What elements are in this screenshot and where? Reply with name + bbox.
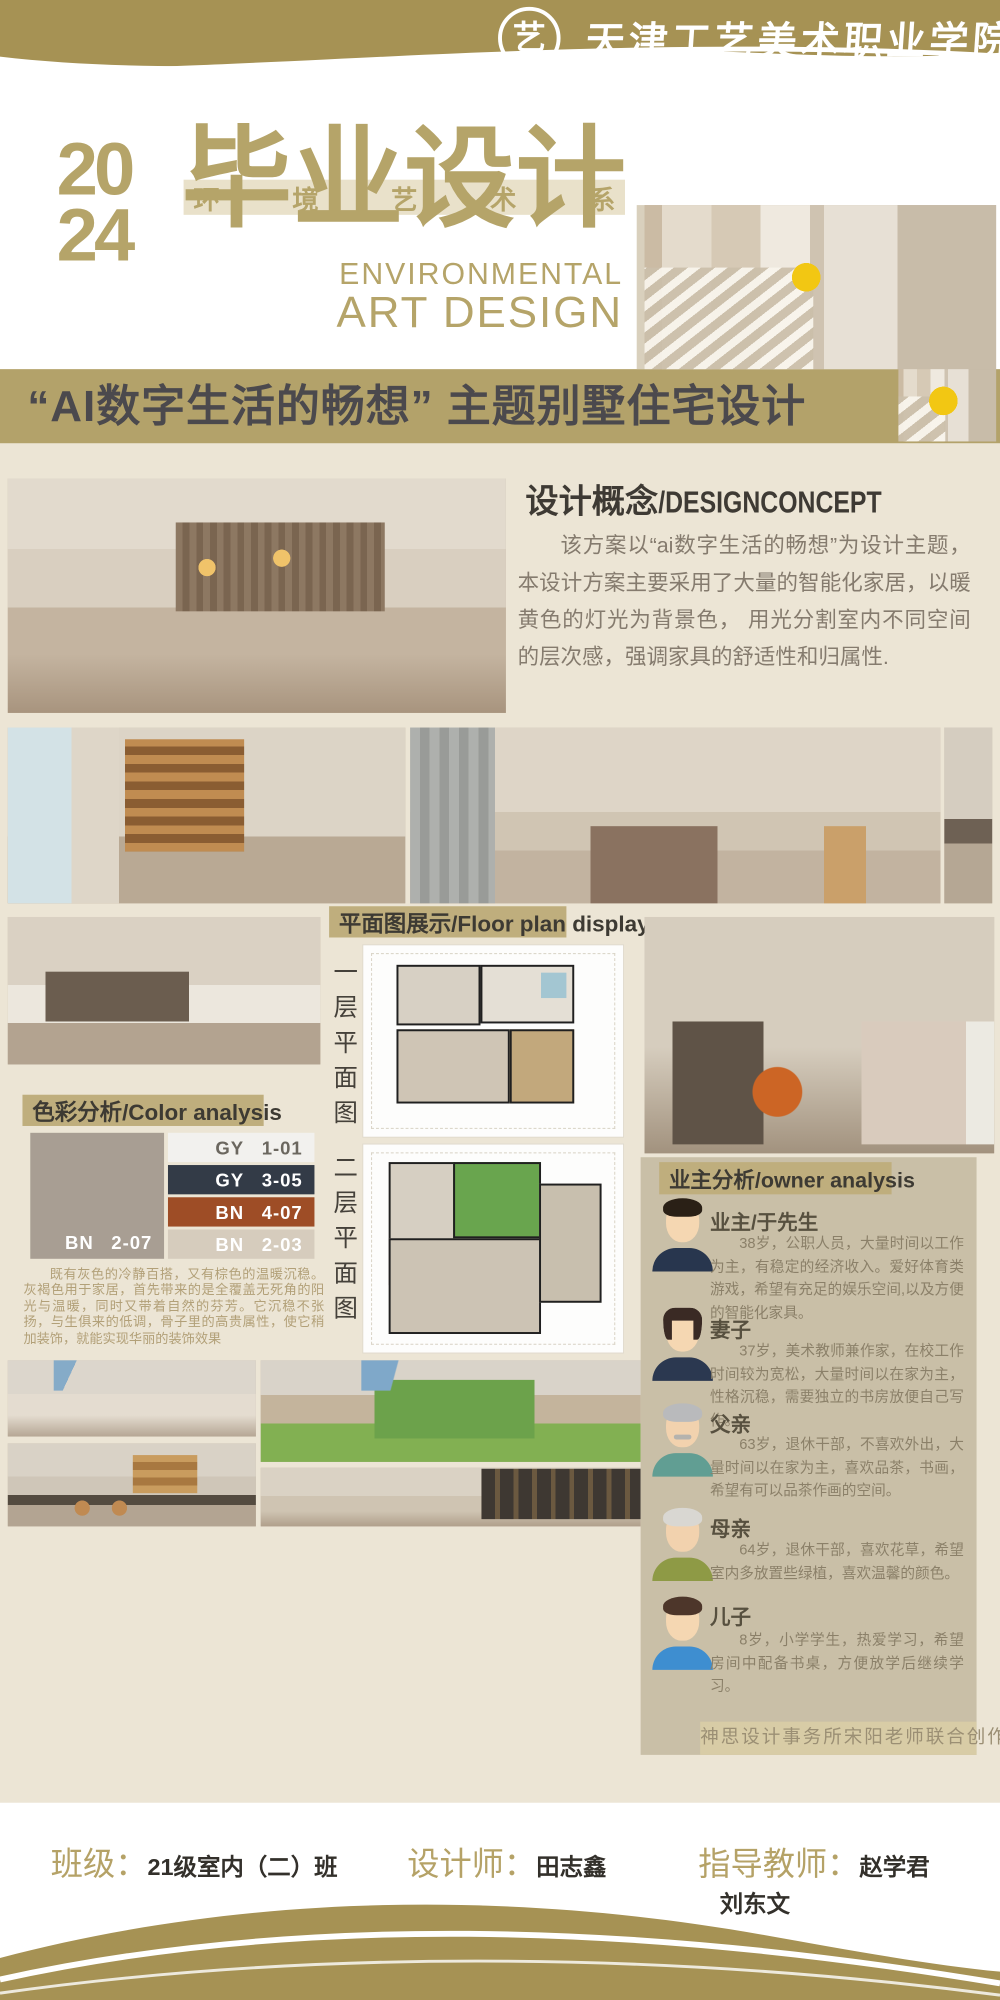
- photo-edge-strip: [637, 205, 645, 369]
- floor-plan-2-room: [539, 1184, 602, 1303]
- member-desc-mother: 64岁，退休干部，喜欢花草，希望室内多放置些绿植，喜欢温馨的颜色。: [710, 1539, 964, 1585]
- floor-plan-1-room-wood: [510, 1029, 574, 1103]
- year-top: 20: [57, 137, 132, 203]
- swatch-label: BN: [65, 1233, 94, 1254]
- footer-designer-value: 田志鑫: [536, 1854, 606, 1880]
- floor-plan-heading: 平面图展示/Floor plan display: [339, 905, 650, 938]
- floor-plan-2: [363, 1145, 623, 1353]
- footer-advisor-label: 指导教师：: [698, 1846, 859, 1882]
- poster: 艺 天津工艺美术职业学院 20 24 环 境 艺 术 系 毕业设计 ENVIRO…: [0, 0, 1000, 2000]
- concept-heading-en: /DESIGNCONCEPT: [658, 485, 881, 520]
- avatar-head: [666, 1406, 699, 1447]
- footer-class-value: 21级室内（二）班: [147, 1854, 337, 1880]
- subtitle-art-design: ART DESIGN: [182, 287, 623, 338]
- swatch-code: 2-03: [262, 1235, 303, 1256]
- swatch-bn-2-07: BN2-07: [30, 1133, 164, 1259]
- school-name: 天津工艺美术职业学院: [584, 10, 998, 67]
- avatar-torso: [652, 1558, 713, 1581]
- photo-bedroom: [8, 917, 321, 1064]
- floor-plan-2-courtyard-green: [453, 1162, 541, 1238]
- floor-plan-2-room: [389, 1238, 541, 1334]
- avatar-father-icon: [652, 1404, 713, 1476]
- avatar-head: [666, 1311, 699, 1352]
- swatch-code: 4-07: [262, 1203, 303, 1224]
- owner-analysis-heading: 业主分析/owner analysis: [669, 1163, 915, 1194]
- swatch-code: 1-01: [262, 1139, 303, 1160]
- floor-plan-label-level2: 二层平面图: [326, 1154, 361, 1330]
- studio-credit: 神思设计事务所宋阳老师联合创作: [700, 1722, 976, 1755]
- photo-dining-room: [944, 728, 992, 904]
- swatch-code: 3-05: [262, 1171, 303, 1192]
- concept-heading-zh: 设计概念: [525, 483, 658, 520]
- footer-designer-label: 设计师：: [407, 1846, 536, 1882]
- concept-heading: 设计概念/DESIGNCONCEPT: [525, 475, 930, 523]
- avatar-husband-icon: [652, 1199, 713, 1271]
- swatch-label: GY: [215, 1139, 244, 1160]
- year-bottom: 24: [57, 203, 132, 269]
- photo-home-bar: [8, 1443, 256, 1526]
- swatch-bn-2-03: BN2-03: [168, 1229, 314, 1258]
- color-analysis-heading: 色彩分析/Color analysis: [32, 1094, 282, 1127]
- avatar-torso: [652, 1248, 713, 1271]
- member-desc-son: 8岁，小学学生，热爱学习，希望房间中配备书桌，方便放学后继续学习。: [710, 1629, 964, 1698]
- floor-plan-1: [363, 945, 623, 1136]
- footer-class-label: 班级：: [51, 1846, 148, 1882]
- swatch-label: BN: [215, 1203, 244, 1224]
- photo-staircase-living-lower: [898, 369, 996, 441]
- color-analysis-heading-band: 色彩分析/Color analysis: [22, 1095, 263, 1126]
- swatch-label: BN: [215, 1235, 244, 1256]
- avatar-torso: [652, 1453, 713, 1476]
- member-desc-father: 63岁，退休干部，不喜欢外出，大量时间以在家为主，喜欢品茶，书画，希望有可以品茶…: [710, 1434, 964, 1503]
- theme-title: “AI数字生活的畅想” 主题别墅住宅设计: [27, 369, 806, 443]
- photo-study-bedroom-orange-chair: [645, 917, 995, 1153]
- swatch-gy-1-01: GY1-01: [168, 1133, 314, 1162]
- floor-plan-1-room: [396, 965, 480, 1026]
- photo-staircase-living: [645, 205, 997, 369]
- school-logo-icon: 艺: [498, 7, 561, 70]
- member-title-son: 儿子: [710, 1602, 751, 1631]
- swatch-gy-3-05: GY3-05: [168, 1165, 314, 1194]
- avatar-torso: [652, 1357, 713, 1380]
- avatar-torso: [652, 1646, 713, 1669]
- concept-body-text: 该方案以“ai数字生活的畅想”为设计主题，本设计方案主要采用了大量的智能化家居，…: [518, 527, 971, 675]
- avatar-mother-icon: [652, 1509, 713, 1581]
- photo-bedroom-skylight: [8, 1360, 256, 1436]
- floor-plan-label-level1: 一层平面图: [326, 959, 361, 1135]
- photo-dining-living-room: [8, 479, 506, 713]
- floor-plan-1-bath: [541, 973, 566, 998]
- swatch-bn-4-07: BN4-07: [168, 1197, 314, 1226]
- avatar-head: [666, 1201, 699, 1242]
- owner-analysis-heading-band: 业主分析/owner analysis: [659, 1162, 891, 1194]
- swatch-code: 2-07: [111, 1233, 152, 1254]
- floor-plan-heading-band: 平面图展示/Floor plan display: [329, 906, 566, 937]
- theme-band: “AI数字生活的畅想” 主题别墅住宅设计: [0, 369, 1000, 443]
- avatar-head: [666, 1600, 699, 1641]
- footer-advisor-value-1: 赵学君: [859, 1854, 929, 1880]
- photo-golf-simulator-room: [261, 1360, 641, 1462]
- member-desc-owner: 38岁，公职人员，大量时间以工作为主，有稳定的经济收入。爱好体育类游戏，希望有充…: [710, 1232, 964, 1324]
- color-analysis-description: 既有灰色的冷静百搭，又有棕色的温暖沉稳。灰褐色用于家居，首先带来的是全覆盖无死角…: [23, 1267, 324, 1347]
- bottom-swoosh-wave: [0, 1878, 1000, 2000]
- avatar-head: [666, 1511, 699, 1552]
- photo-tea-room-cabinet: [8, 728, 405, 904]
- swatch-label: GY: [215, 1171, 244, 1192]
- main-title-graduation-design: 毕业设计: [182, 121, 627, 236]
- photo-study-glass-cabinet: [261, 1468, 641, 1527]
- floor-plan-1-room: [396, 1029, 509, 1103]
- avatar-son-icon: [652, 1598, 713, 1670]
- year-2024: 20 24: [57, 137, 132, 270]
- avatar-wife-icon: [652, 1309, 713, 1381]
- photo-living-room-sofa: [410, 728, 940, 904]
